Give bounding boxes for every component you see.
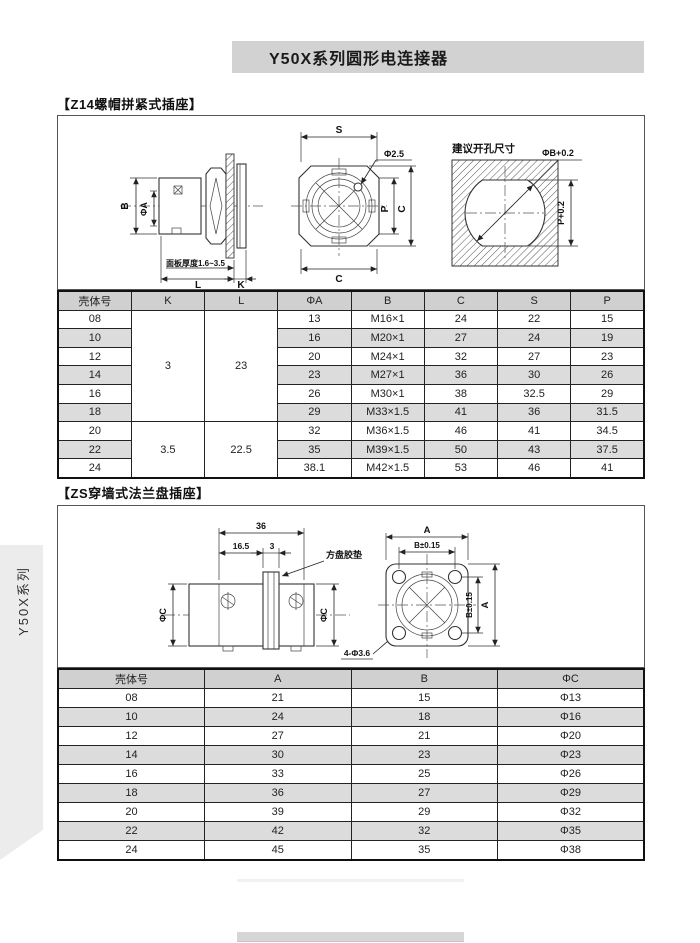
table-cell: 38	[424, 384, 497, 403]
table-cell: 29	[278, 403, 351, 422]
panel-hatch	[226, 154, 234, 258]
table-cell: 26	[571, 366, 644, 385]
table-cell: 27	[205, 727, 352, 746]
table-cell: 15	[571, 310, 644, 329]
table-cell: 35	[351, 841, 498, 861]
table-cell: 22	[498, 310, 571, 329]
table-cell: 46	[424, 422, 497, 441]
table-cell: 24	[58, 459, 131, 478]
table-cell: 46	[498, 459, 571, 478]
dim-label-3: 3	[270, 541, 275, 551]
panel-thickness-note: 面板厚度1.6~3.5	[166, 258, 225, 268]
z14-drawing-svg: B ΦA 面板厚度1.6~3.5 L K	[58, 116, 644, 289]
dim-label-a-top: A	[424, 525, 431, 536]
table-cell: 14	[58, 746, 205, 765]
zs-drawing-svg: 36 16.5 3 方盘胶垫 ΦC ΦC 4-Φ3.6	[58, 506, 644, 667]
footer-bar	[237, 932, 464, 942]
dim-label-phi-c-right: ΦC	[319, 608, 329, 622]
column-header: K	[131, 291, 204, 310]
table-cell: Φ29	[498, 784, 645, 803]
table-cell: 29	[571, 384, 644, 403]
dim-label-36: 36	[256, 521, 266, 531]
dim-label-a-right: A	[480, 601, 491, 608]
table-cell: 14	[58, 366, 131, 385]
table-cell: 41	[424, 403, 497, 422]
table-row: 0832313M16×1242215	[58, 310, 644, 329]
table-cell: 50	[424, 440, 497, 459]
table-cell: Φ16	[498, 708, 645, 727]
dim-label-l: L	[195, 280, 201, 289]
table-cell: 30	[498, 366, 571, 385]
table-cell: 27	[424, 329, 497, 348]
rear-plate	[237, 164, 246, 248]
mount-hole	[393, 571, 406, 584]
table-cell: M20×1	[351, 329, 424, 348]
table-cell: 39	[205, 803, 352, 822]
table-cell: 23	[278, 366, 351, 385]
table-cell: 22	[58, 822, 205, 841]
table-cell: 35	[278, 440, 351, 459]
table-cell: 08	[58, 689, 205, 708]
table-cell: 36	[424, 366, 497, 385]
table-cell: 16	[58, 384, 131, 403]
table-cell: M33×1.5	[351, 403, 424, 422]
table-cell: 32	[424, 347, 497, 366]
column-header: 壳体号	[58, 291, 131, 310]
table-cell: 43	[498, 440, 571, 459]
flange-gasket-stack	[263, 572, 279, 649]
table-cell: 19	[571, 329, 644, 348]
table-cell: 24	[424, 310, 497, 329]
dim-label-p02: P+0.2	[556, 201, 566, 225]
dim-label-b015-right: B±0.15	[465, 592, 474, 618]
table-cell: 16	[58, 765, 205, 784]
page-title: Y50X系列圆形电连接器	[269, 45, 448, 69]
mount-hole	[449, 571, 462, 584]
table-cell: 27	[498, 347, 571, 366]
table-cell: 29	[351, 803, 498, 822]
footer-strip	[237, 879, 464, 882]
table-cell: M24×1	[351, 347, 424, 366]
table-cell: 38.1	[278, 459, 351, 478]
table-cell: Φ20	[498, 727, 645, 746]
column-header: C	[424, 291, 497, 310]
table-cell: 21	[205, 689, 352, 708]
z14-table-body: 0832313M16×12422151016M20×12724191220M24…	[58, 310, 644, 478]
table-cell: Φ35	[498, 822, 645, 841]
column-header: ΦA	[278, 291, 351, 310]
table-row: 143023Φ23	[58, 746, 644, 765]
table-cell: Φ26	[498, 765, 645, 784]
table-cell: 16	[278, 329, 351, 348]
dim-label-p: P	[380, 205, 391, 212]
table-row: 122721Φ20	[58, 727, 644, 746]
table-cell: 27	[351, 784, 498, 803]
table-cell: 33	[205, 765, 352, 784]
table-cell: 36	[498, 403, 571, 422]
table-cell: 36	[205, 784, 352, 803]
table-cell: Φ13	[498, 689, 645, 708]
table-cell: M42×1.5	[351, 459, 424, 478]
table-row: 224232Φ35	[58, 822, 644, 841]
section2-heading: 【ZS穿墙式法兰盘插座】	[57, 483, 210, 502]
mount-hole	[449, 627, 462, 640]
zs-table-header-row: 壳体号ABΦC	[58, 669, 644, 689]
table-cell: 21	[351, 727, 498, 746]
table-row: 244535Φ38	[58, 841, 644, 861]
table-cell: 20	[58, 803, 205, 822]
table-cell: 18	[351, 708, 498, 727]
table-cell: 13	[278, 310, 351, 329]
datasheet-page: Y50X系列圆形电连接器 Y50X系列 【Z14螺帽拼紧式插座】	[0, 0, 700, 943]
table-cell: 32	[278, 422, 351, 441]
column-header: B	[351, 669, 498, 689]
table-cell: 18	[58, 403, 131, 422]
dim-label-165: 16.5	[233, 541, 250, 551]
mount-hole	[393, 627, 406, 640]
table-cell: M16×1	[351, 310, 424, 329]
column-header: S	[498, 291, 571, 310]
table-row: 082115Φ13	[58, 689, 644, 708]
table-cell: 12	[58, 347, 131, 366]
table-row: 183627Φ29	[58, 784, 644, 803]
table-cell: M36×1.5	[351, 422, 424, 441]
index-hole	[354, 183, 362, 191]
zs-table: 壳体号ABΦC 082115Φ13102418Φ16122721Φ2014302…	[57, 668, 645, 861]
table-cell: 23	[205, 310, 278, 422]
table-cell: 30	[205, 746, 352, 765]
dim-label-s: S	[336, 125, 343, 136]
table-cell: 10	[58, 708, 205, 727]
z14-table-header-row: 壳体号KLΦABCSP	[58, 291, 644, 310]
column-header: L	[205, 291, 278, 310]
table-cell: 3.5	[131, 422, 204, 478]
column-header: ΦC	[498, 669, 645, 689]
dim-label-b015-top: B±0.15	[414, 541, 440, 550]
cutout-title: 建议开孔尺寸	[451, 142, 515, 155]
table-cell: 45	[205, 841, 352, 861]
sidebar-label: Y50X系列	[13, 541, 29, 661]
table-cell: 22.5	[205, 422, 278, 478]
table-cell: 32	[351, 822, 498, 841]
column-header: B	[351, 291, 424, 310]
z14-drawing: B ΦA 面板厚度1.6~3.5 L K	[57, 115, 645, 290]
table-cell: 26	[278, 384, 351, 403]
dim-label-c-bottom: C	[335, 274, 342, 285]
table-cell: 31.5	[571, 403, 644, 422]
table-cell: 32.5	[498, 384, 571, 403]
table-cell: M30×1	[351, 384, 424, 403]
dim-label-phi-a: ΦA	[139, 202, 149, 216]
table-cell: M39×1.5	[351, 440, 424, 459]
zs-table-body: 082115Φ13102418Φ16122721Φ20143023Φ231633…	[58, 689, 644, 861]
column-header: 壳体号	[58, 669, 205, 689]
dim-label-phi-c-left: ΦC	[158, 608, 168, 622]
table-cell: 41	[571, 459, 644, 478]
gasket-label: 方盘胶垫	[326, 549, 362, 560]
table-cell: 53	[424, 459, 497, 478]
zs-body	[189, 584, 314, 646]
dim-label-c-right: C	[397, 205, 408, 212]
table-cell: 42	[205, 822, 352, 841]
table-cell: 25	[351, 765, 498, 784]
table-cell: 37.5	[571, 440, 644, 459]
column-header: P	[571, 291, 644, 310]
connector-body	[159, 178, 201, 234]
table-cell: 20	[58, 422, 131, 441]
table-cell: 24	[205, 708, 352, 727]
table-cell: 10	[58, 329, 131, 348]
table-cell: 24	[498, 329, 571, 348]
table-cell: 08	[58, 310, 131, 329]
table-row: 163325Φ26	[58, 765, 644, 784]
table-cell: Φ23	[498, 746, 645, 765]
table-cell: 3	[131, 310, 204, 422]
dim-label-phi-b: ΦB+0.2	[542, 148, 574, 158]
mount-holes-label: 4-Φ3.6	[344, 648, 371, 658]
section1-heading: 【Z14螺帽拼紧式插座】	[57, 94, 202, 113]
table-cell: 18	[58, 784, 205, 803]
table-cell: 22	[58, 440, 131, 459]
table-row: 102418Φ16	[58, 708, 644, 727]
table-cell: 20	[278, 347, 351, 366]
table-cell: 23	[351, 746, 498, 765]
column-header: A	[205, 669, 352, 689]
table-cell: M27×1	[351, 366, 424, 385]
table-row: 203.522.532M36×1.5464134.5	[58, 422, 644, 441]
dim-label-phi25: Φ2.5	[384, 149, 404, 159]
table-cell: Φ32	[498, 803, 645, 822]
dim-label-k: K	[237, 280, 245, 289]
dim-label-b: B	[120, 202, 131, 209]
table-cell: 41	[498, 422, 571, 441]
table-cell: 15	[351, 689, 498, 708]
zs-drawing: 36 16.5 3 方盘胶垫 ΦC ΦC 4-Φ3.6	[57, 505, 645, 668]
table-row: 203929Φ32	[58, 803, 644, 822]
z14-table: 壳体号KLΦABCSP 0832313M16×12422151016M20×12…	[57, 290, 645, 479]
table-cell: 23	[571, 347, 644, 366]
table-cell: 12	[58, 727, 205, 746]
table-cell: Φ38	[498, 841, 645, 861]
table-cell: 24	[58, 841, 205, 861]
table-cell: 34.5	[571, 422, 644, 441]
page-title-bar: Y50X系列圆形电连接器	[232, 41, 644, 73]
